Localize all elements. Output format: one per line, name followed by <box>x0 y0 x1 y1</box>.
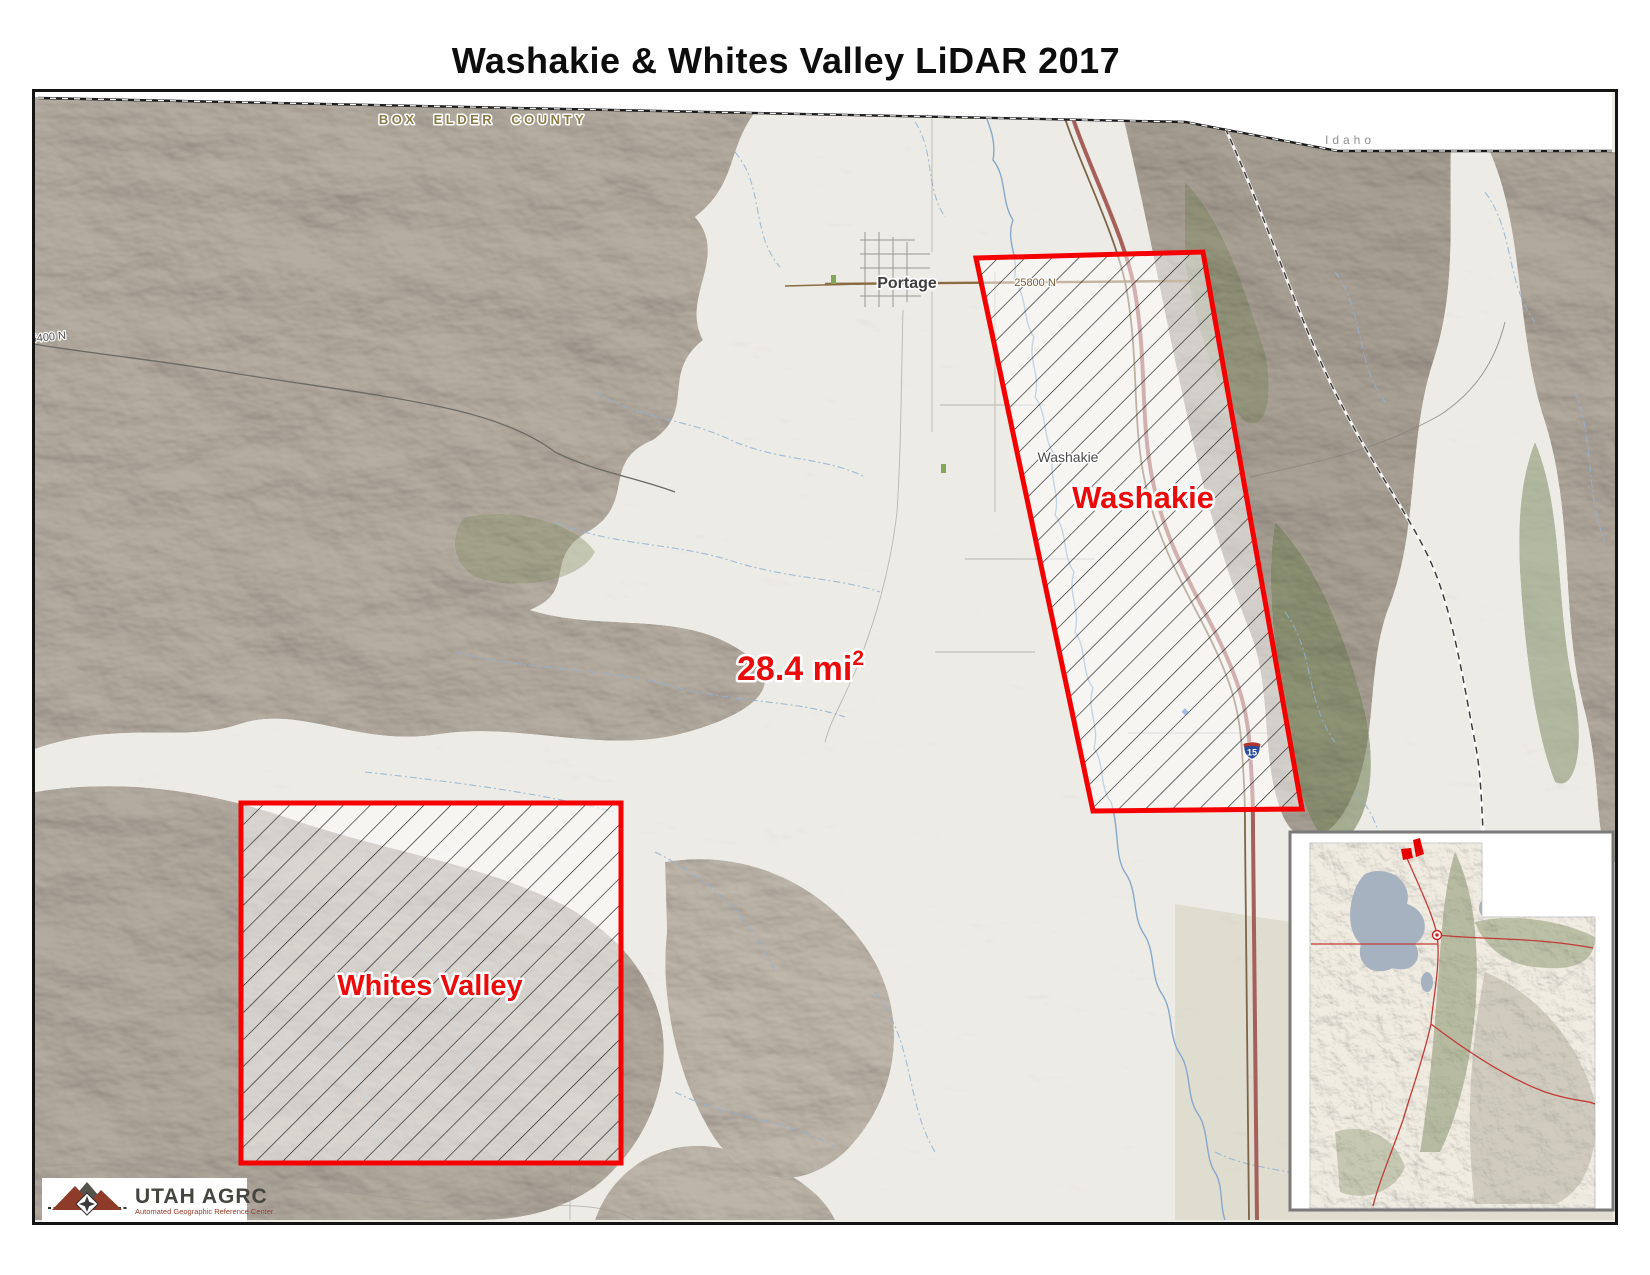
road-25800n-label: 25800 N <box>1014 277 1056 289</box>
inset-map <box>1290 832 1613 1210</box>
inset-utah-lake <box>1421 972 1433 992</box>
agrc-logo-subtitle: Automated Geographic Reference Center <box>135 1207 274 1216</box>
agrc-logo-title: UTAH AGRC <box>135 1185 268 1208</box>
interstate-shield-number: 15 <box>1247 748 1257 758</box>
map-frame: BOX ELDER COUNTY Idaho Portage 25800 N 5… <box>32 89 1618 1225</box>
idaho-label: Idaho <box>1325 133 1375 147</box>
area-measurement-label: 28.4 mi2 <box>737 647 864 688</box>
washakie-polygon-label: Washakie <box>1072 480 1214 515</box>
washakie-town-label: Washakie <box>1038 449 1099 465</box>
county-label: BOX ELDER COUNTY <box>379 112 587 127</box>
page-title: Washakie & Whites Valley LiDAR 2017 <box>0 40 1572 82</box>
agrc-logo: UTAH AGRC Automated Geographic Reference… <box>42 1178 274 1222</box>
map-canvas: BOX ELDER COUNTY Idaho Portage 25800 N 5… <box>35 92 1615 1222</box>
inset-city-marker-dot <box>1435 933 1438 936</box>
whites-valley-polygon-label: Whites Valley <box>337 970 522 1002</box>
portage-town-label: Portage <box>877 275 937 292</box>
terrain-northwest-mountains <box>35 97 765 749</box>
